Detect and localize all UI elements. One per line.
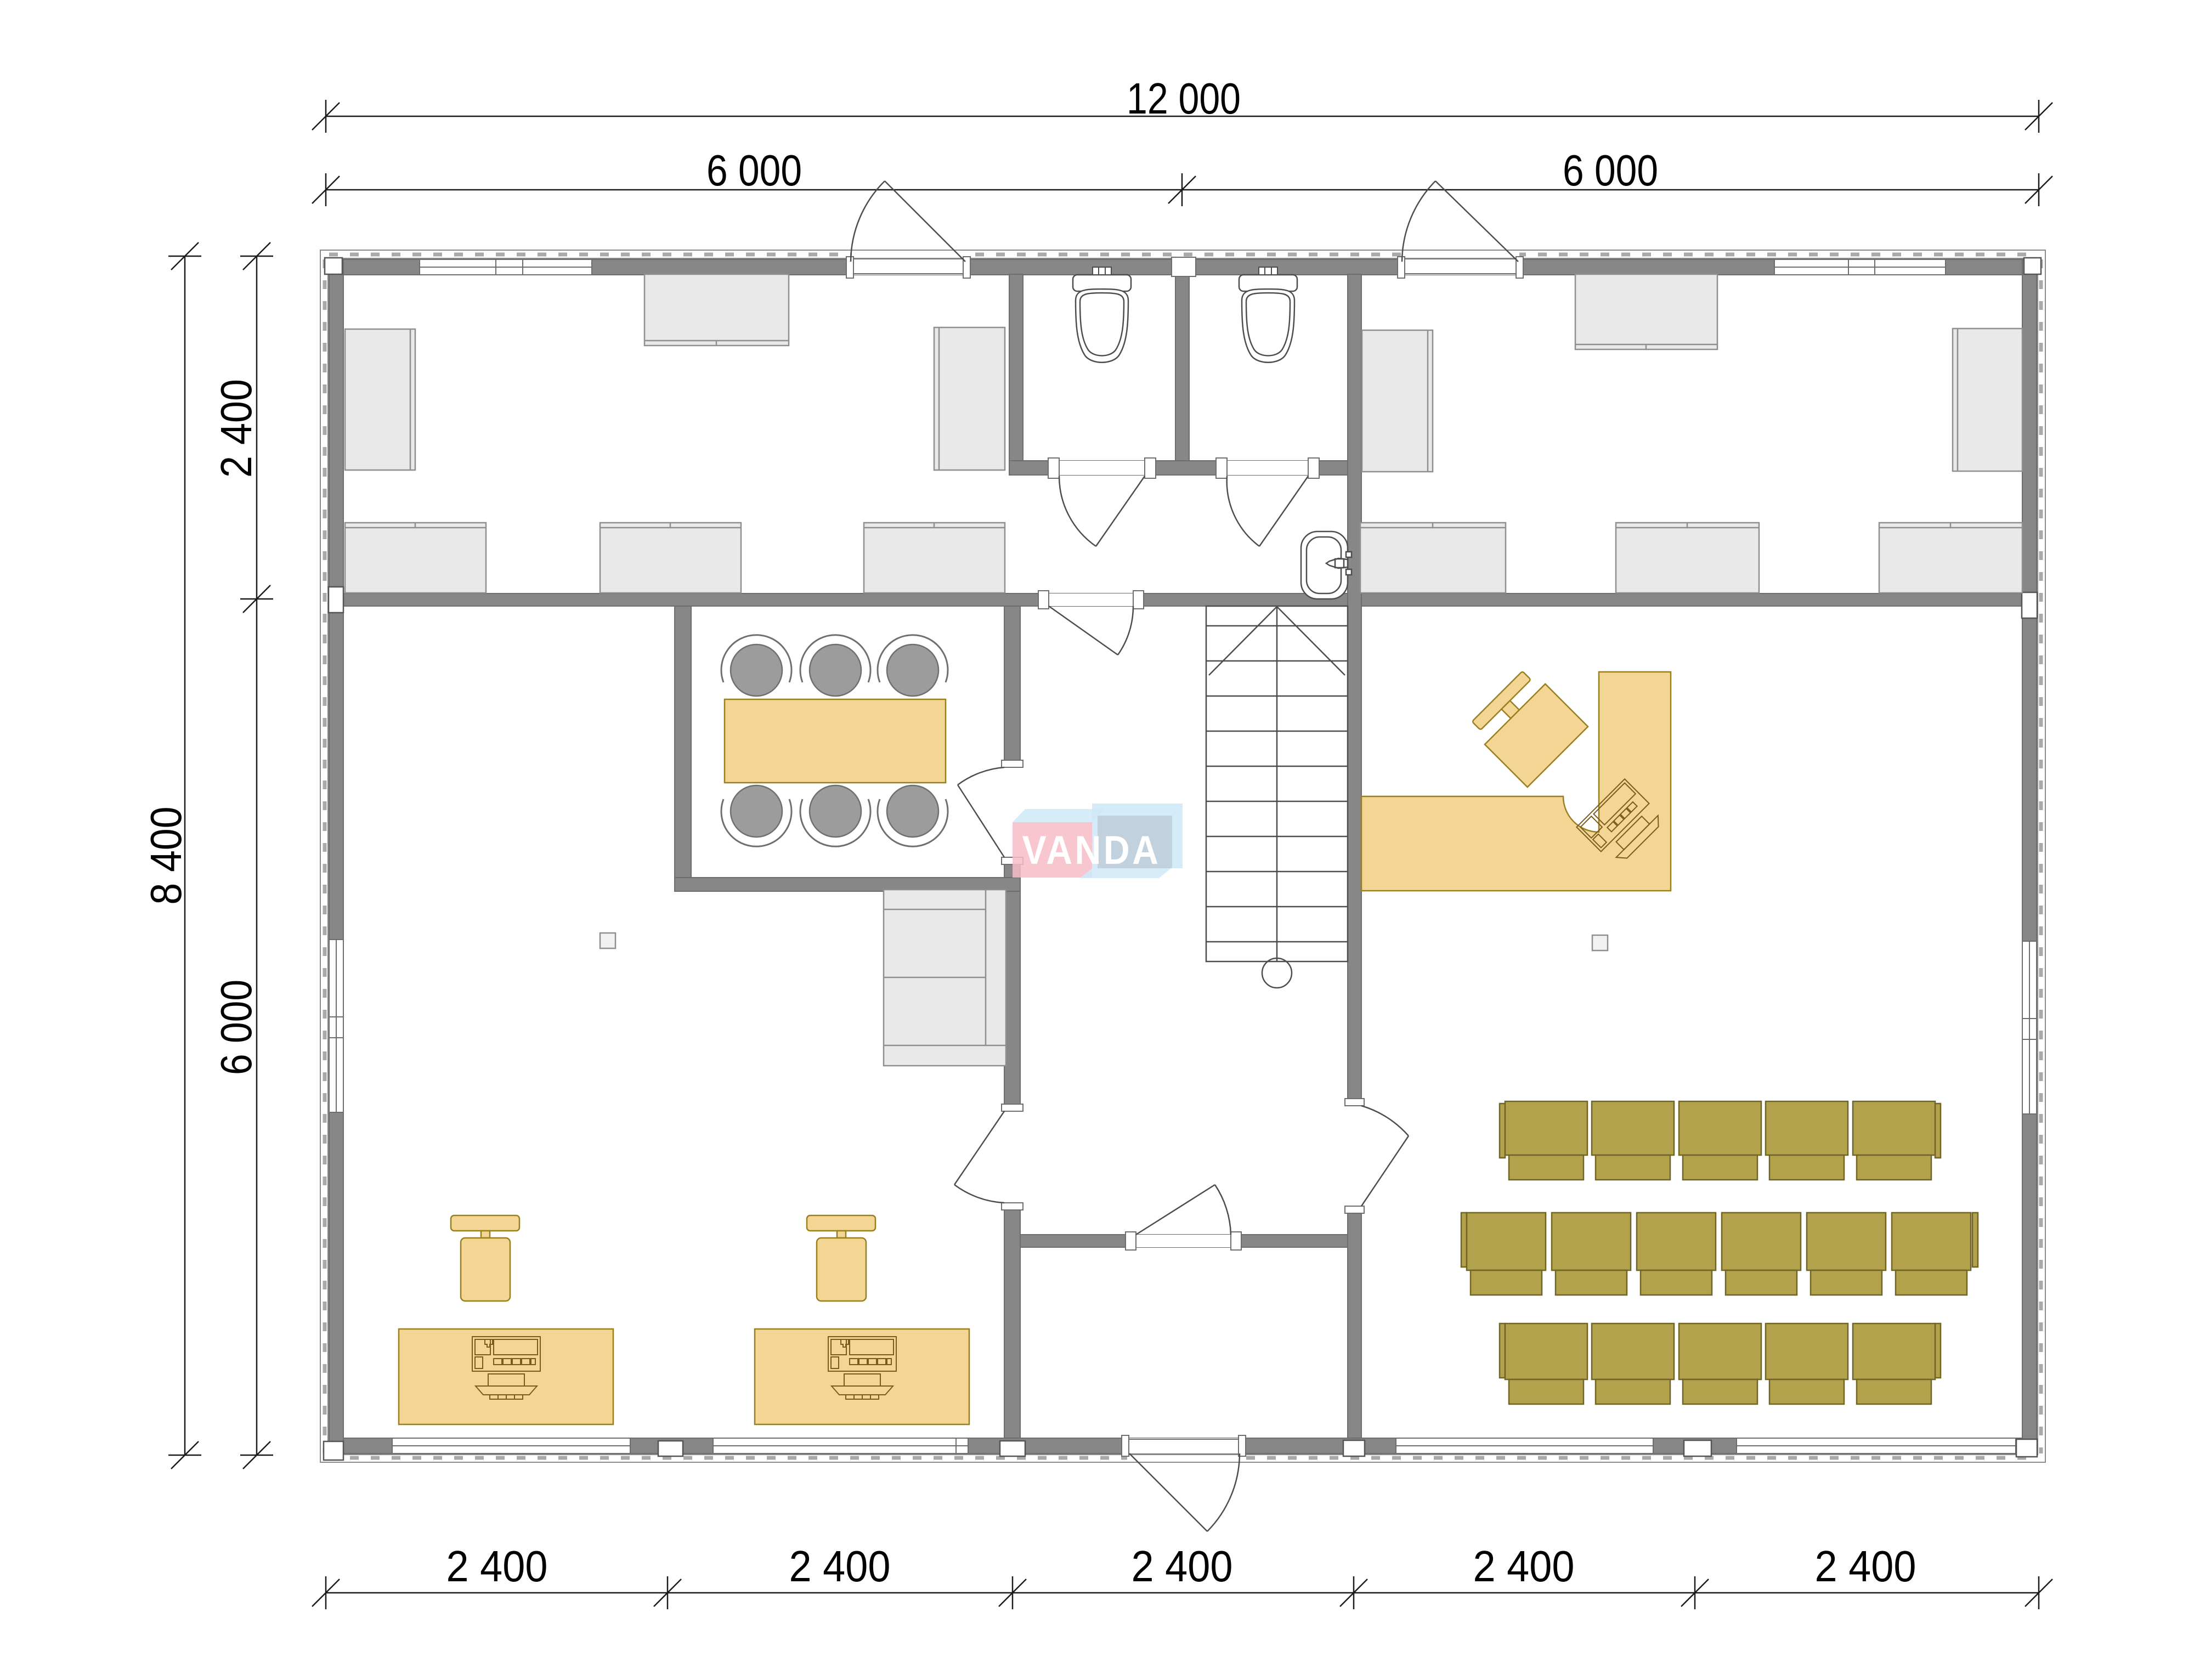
svg-text:6 000: 6 000 [1563,146,1658,195]
svg-text:2 400: 2 400 [446,1542,548,1591]
svg-text:2 400: 2 400 [1473,1542,1575,1591]
svg-text:12 000: 12 000 [1127,74,1241,123]
svg-text:2 400: 2 400 [212,379,261,478]
svg-text:2 400: 2 400 [1132,1542,1233,1591]
svg-text:2 400: 2 400 [1815,1542,1916,1591]
svg-text:6 000: 6 000 [706,146,802,195]
svg-text:VANDA: VANDA [1022,828,1161,873]
svg-text:6 000: 6 000 [212,980,261,1075]
svg-text:8 400: 8 400 [142,807,190,905]
svg-text:2 400: 2 400 [789,1542,891,1591]
